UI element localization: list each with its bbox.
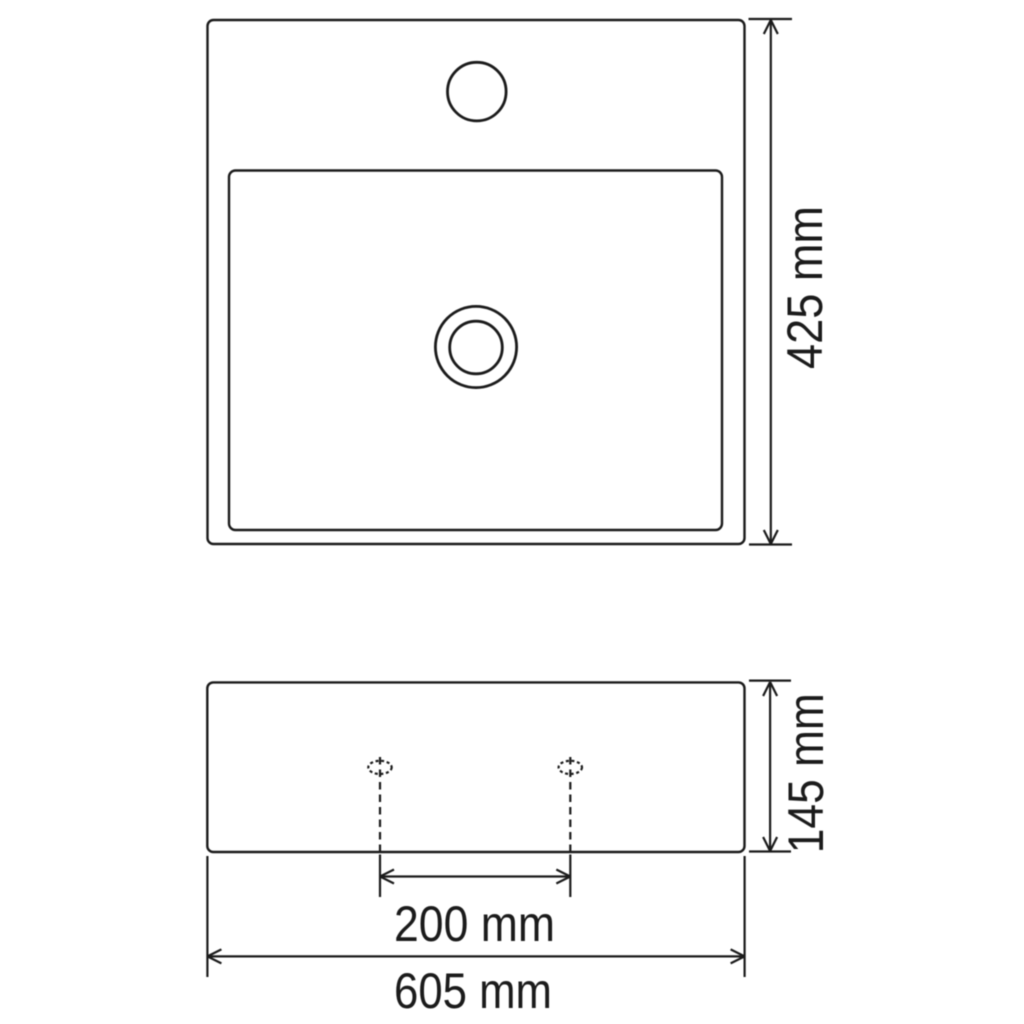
svg-text:605 mm: 605 mm <box>394 963 552 1019</box>
svg-text:425 mm: 425 mm <box>777 206 833 369</box>
svg-text:200 mm: 200 mm <box>394 896 555 952</box>
svg-text:145 mm: 145 mm <box>778 693 834 853</box>
